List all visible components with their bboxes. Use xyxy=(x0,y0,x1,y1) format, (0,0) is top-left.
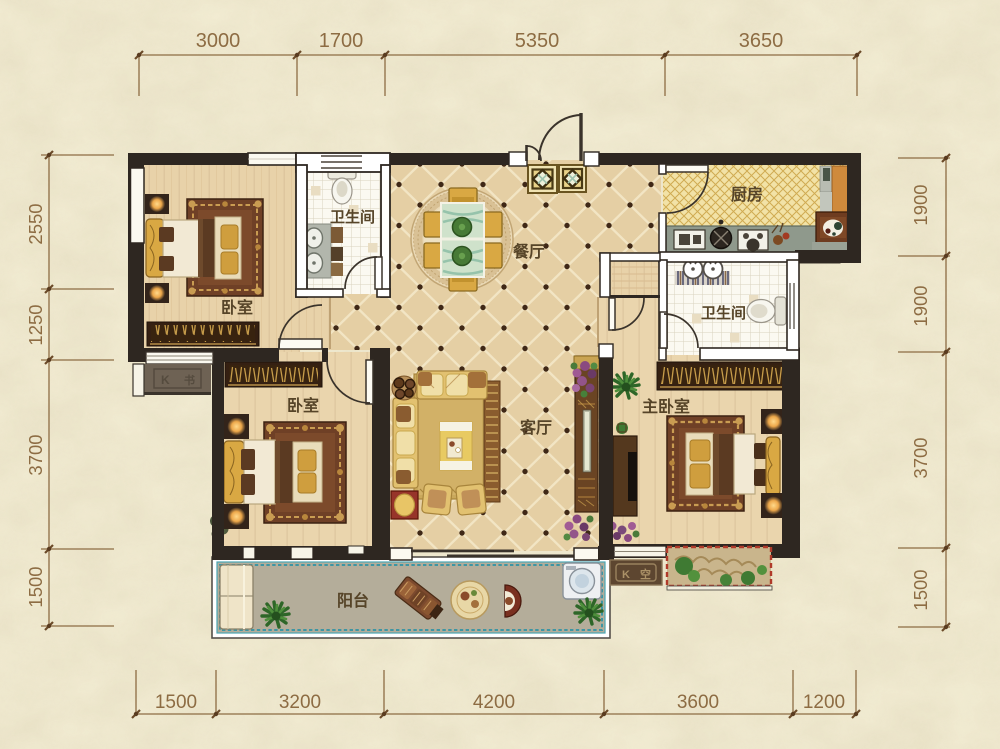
svg-text:5350: 5350 xyxy=(515,30,560,52)
svg-text:1500: 1500 xyxy=(155,692,197,713)
svg-text:1700: 1700 xyxy=(319,30,364,52)
svg-text:卧室: 卧室 xyxy=(221,298,253,317)
svg-text:4200: 4200 xyxy=(473,692,515,713)
svg-text:1900: 1900 xyxy=(910,184,931,225)
svg-text:1250: 1250 xyxy=(25,304,46,345)
svg-text:1900: 1900 xyxy=(910,285,931,326)
svg-text:阳台: 阳台 xyxy=(337,591,369,610)
svg-text:1500: 1500 xyxy=(25,566,46,607)
svg-text:餐厅: 餐厅 xyxy=(512,242,545,261)
svg-text:卫生间: 卫生间 xyxy=(330,208,375,226)
svg-text:3650: 3650 xyxy=(739,30,784,52)
svg-text:书: 书 xyxy=(184,373,195,387)
svg-text:空: 空 xyxy=(640,567,651,581)
svg-text:3600: 3600 xyxy=(677,692,719,713)
svg-text:K: K xyxy=(161,373,170,387)
svg-text:3700: 3700 xyxy=(25,434,46,475)
svg-text:2550: 2550 xyxy=(25,203,46,244)
svg-text:1200: 1200 xyxy=(803,692,845,713)
svg-text:主卧室: 主卧室 xyxy=(642,397,690,416)
svg-text:厨房: 厨房 xyxy=(731,185,763,204)
svg-text:3000: 3000 xyxy=(196,30,241,52)
svg-text:卫生间: 卫生间 xyxy=(701,304,746,322)
svg-text:3200: 3200 xyxy=(279,692,321,713)
svg-text:K: K xyxy=(622,569,630,581)
svg-text:客厅: 客厅 xyxy=(520,418,552,437)
svg-text:1500: 1500 xyxy=(910,569,931,610)
svg-text:3700: 3700 xyxy=(910,437,931,478)
svg-text:卧室: 卧室 xyxy=(287,396,319,415)
